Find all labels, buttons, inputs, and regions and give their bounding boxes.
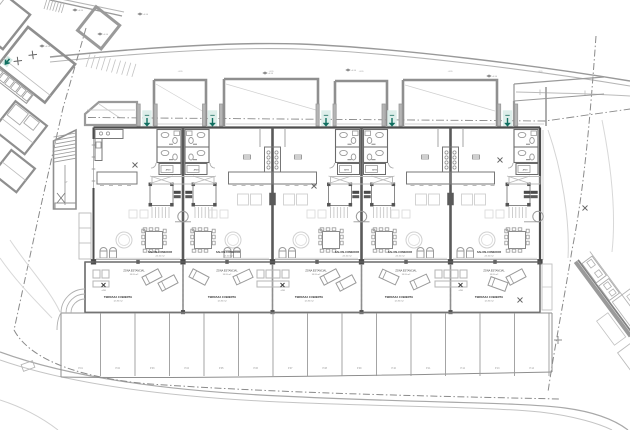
svg-text:P.08: P.08 [322, 367, 327, 370]
svg-text:24.10 m2: 24.10 m2 [155, 256, 165, 258]
svg-text:+4.50: +4.50 [45, 46, 51, 48]
svg-text:TERRAZA CUBIERTA: TERRAZA CUBIERTA [385, 295, 413, 299]
svg-text:12.35 m2: 12.35 m2 [394, 301, 404, 303]
svg-text:ZONA ESTANCIAL: ZONA ESTANCIAL [216, 270, 238, 273]
svg-text:ZONA ESTANCIAL: ZONA ESTANCIAL [395, 270, 417, 273]
svg-text:24.10 m2: 24.10 m2 [484, 256, 494, 258]
svg-text:24.10 m2: 24.10 m2 [223, 256, 233, 258]
svg-text:24.10 m2: 24.10 m2 [342, 256, 352, 258]
svg-text:+3.95: +3.95 [537, 71, 543, 73]
svg-text:ZONA ESTANCIAL: ZONA ESTANCIAL [305, 270, 327, 273]
svg-text:18.20 m2: 18.20 m2 [130, 274, 140, 276]
svg-text:+4.50: +4.50 [268, 73, 274, 75]
svg-text:12.35 m2: 12.35 m2 [484, 301, 494, 303]
svg-text:ARM: ARM [523, 169, 528, 172]
svg-text:P.09: P.09 [357, 367, 362, 370]
svg-text:P.14: P.14 [529, 367, 534, 370]
svg-text:TERRAZA CUBIERTA: TERRAZA CUBIERTA [208, 295, 236, 299]
svg-text:ARM: ARM [166, 169, 171, 172]
svg-text:ARM: ARM [344, 169, 349, 172]
svg-text:P.06: P.06 [253, 367, 258, 370]
svg-text:+3.95: +3.95 [268, 71, 274, 73]
svg-text:+4.50: +4.50 [103, 34, 109, 36]
svg-text:P.11: P.11 [426, 367, 431, 370]
svg-text:SALON-COMEDOR: SALON-COMEDOR [477, 250, 501, 254]
svg-text:P.07: P.07 [288, 367, 293, 370]
svg-text:+3.95: +3.95 [358, 71, 364, 73]
svg-text:+4.50: +4.50 [492, 76, 498, 78]
svg-text:ARM: ARM [194, 169, 199, 172]
svg-text:ZONA ESTANCIAL: ZONA ESTANCIAL [123, 270, 145, 273]
svg-text:18.20 m2: 18.20 m2 [223, 274, 233, 276]
svg-text:ZONA ESTANCIAL: ZONA ESTANCIAL [483, 270, 505, 273]
svg-text:SALON-COMEDOR: SALON-COMEDOR [388, 250, 412, 254]
svg-text:+4.50: +4.50 [351, 70, 357, 72]
svg-text:TERRAZA CUBIERTA: TERRAZA CUBIERTA [295, 295, 323, 299]
svg-text:P.10: P.10 [391, 367, 396, 370]
svg-text:P.02: P.02 [115, 367, 120, 370]
svg-text:P.04: P.04 [184, 367, 189, 370]
svg-text:SALON-COMEDOR: SALON-COMEDOR [148, 250, 172, 254]
svg-text:+4.50: +4.50 [78, 10, 84, 12]
svg-text:18.20 m2: 18.20 m2 [402, 274, 412, 276]
svg-text:+4.50: +4.50 [143, 14, 149, 16]
svg-text:+3.95: +3.95 [447, 71, 453, 73]
svg-text:24.10 m2: 24.10 m2 [395, 256, 405, 258]
svg-text:TERRAZA CUBIERTA: TERRAZA CUBIERTA [104, 295, 132, 299]
svg-text:P.12: P.12 [460, 367, 465, 370]
svg-text:18.20 m2: 18.20 m2 [312, 274, 322, 276]
svg-text:12.35 m2: 12.35 m2 [304, 301, 314, 303]
svg-text:P.05: P.05 [219, 367, 224, 370]
svg-text:18.20 m2: 18.20 m2 [490, 274, 500, 276]
svg-text:SALON-COMEDOR: SALON-COMEDOR [335, 250, 359, 254]
svg-text:P.01: P.01 [78, 367, 83, 370]
svg-text:+3.95: +3.95 [177, 71, 183, 73]
svg-text:SALON-COMEDOR: SALON-COMEDOR [216, 250, 240, 254]
svg-text:ARM: ARM [372, 169, 377, 172]
svg-text:TERRAZA CUBIERTA: TERRAZA CUBIERTA [475, 295, 503, 299]
svg-text:P.13: P.13 [495, 367, 500, 370]
svg-text:12.35 m2: 12.35 m2 [113, 301, 123, 303]
svg-text:12.35 m2: 12.35 m2 [217, 301, 227, 303]
svg-text:P.03: P.03 [150, 367, 155, 370]
